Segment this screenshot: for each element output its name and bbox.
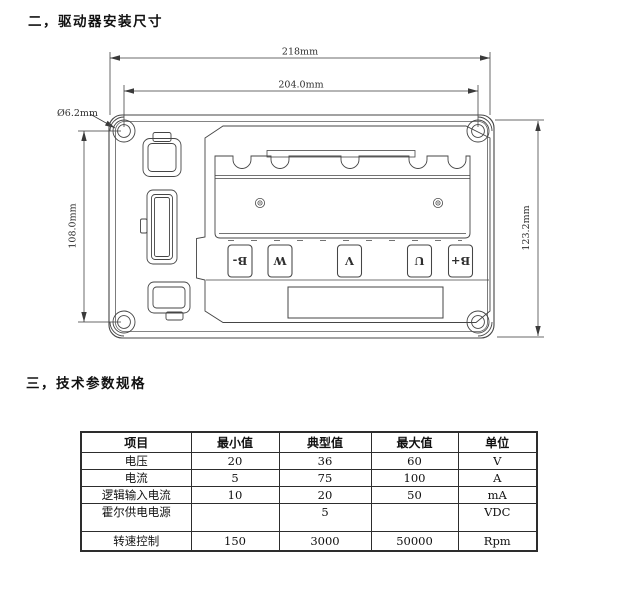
dimension-mount-height: 108.0mm [68, 131, 122, 322]
terminal-label-u: U [414, 254, 424, 268]
screw-left [255, 198, 264, 207]
cell-max: 60 [371, 453, 458, 470]
table-row-logic-input-current: 逻辑输入电流 10 20 50 mA [81, 487, 537, 504]
terminal-v [338, 245, 362, 277]
body-outline [109, 115, 494, 338]
nameplate [288, 287, 443, 318]
connector-bottom [148, 282, 190, 320]
body-inner-wall [116, 122, 488, 332]
cell-unit: V [458, 453, 537, 470]
center-panel [197, 126, 491, 323]
dim-label-mount-width: 204.0mm [278, 80, 323, 91]
dimension-overall-width: 218mm [110, 47, 490, 116]
col-header-min: 最小值 [191, 432, 279, 453]
cell-min: 20 [191, 453, 279, 470]
cell-item: 霍尔供电电源 [81, 504, 191, 532]
dim-label-overall-height: 123.2mm [521, 205, 532, 250]
cell-min: 10 [191, 487, 279, 504]
cell-max [371, 504, 458, 532]
terminal-label-b-minus: B- [232, 254, 247, 268]
dim-label-hole-diameter: Ø6.2mm [57, 108, 98, 119]
mounting-hole-bottom-right [467, 311, 492, 336]
table-row-voltage: 电压 20 36 60 V [81, 453, 537, 470]
mounting-hole-top-left [110, 117, 135, 142]
dim-label-overall-width: 218mm [282, 47, 318, 58]
cell-typ: 36 [279, 453, 371, 470]
cell-item: 电压 [81, 453, 191, 470]
connector-middle [141, 190, 178, 264]
col-header-unit: 单位 [458, 432, 537, 453]
terminal-b-minus [228, 245, 252, 277]
cell-typ: 3000 [279, 532, 371, 551]
cell-typ: 75 [279, 470, 371, 487]
cell-unit: VDC [458, 504, 537, 532]
terminal-label-b-plus: B+ [451, 254, 470, 268]
mounting-hole-top-right [467, 117, 492, 142]
dimension-mount-width: 204.0mm [124, 80, 478, 128]
terminal-label-w: W [272, 254, 287, 268]
terminal-b-plus [449, 245, 473, 277]
specs-table: 项目 最小值 典型值 最大值 单位 电压 20 36 60 V 电流 5 75 … [80, 431, 538, 552]
controller-body: B- W V U B+ [109, 115, 494, 338]
terminal-label-v: V [344, 254, 355, 268]
heatsink-block [215, 151, 470, 241]
cell-min: 5 [191, 470, 279, 487]
col-header-max: 最大值 [371, 432, 458, 453]
dimension-overall-height: 123.2mm [495, 120, 544, 337]
terminal-u [408, 245, 432, 277]
dim-label-mount-height: 108.0mm [68, 203, 79, 248]
cell-typ: 5 [279, 504, 371, 532]
cell-typ: 20 [279, 487, 371, 504]
datasheet-page: 二，驱动器安装尺寸 218mm 204.0mm Ø6.2mm 108.0mm [0, 0, 622, 589]
screw-right [433, 198, 442, 207]
dimension-hole-diameter: Ø6.2mm [57, 108, 115, 128]
cell-unit: Rpm [458, 532, 537, 551]
table-row-current: 电流 5 75 100 A [81, 470, 537, 487]
col-header-typical: 典型值 [279, 432, 371, 453]
cell-item: 逻辑输入电流 [81, 487, 191, 504]
mounting-hole-bottom-left [110, 311, 135, 336]
cell-max: 100 [371, 470, 458, 487]
col-header-item: 项目 [81, 432, 191, 453]
specs-header-row: 项目 最小值 典型值 最大值 单位 [81, 432, 537, 453]
terminal-w [268, 245, 292, 277]
table-row-speed-control: 转速控制 150 3000 50000 Rpm [81, 532, 537, 551]
cell-max: 50 [371, 487, 458, 504]
cell-min: 150 [191, 532, 279, 551]
section-title-specs: 三，技术参数规格 [26, 372, 146, 392]
table-row-hall-supply: 霍尔供电电源 5 VDC [81, 504, 537, 532]
cell-max: 50000 [371, 532, 458, 551]
cell-unit: mA [458, 487, 537, 504]
cell-min [191, 504, 279, 532]
terminal-block [228, 245, 473, 277]
terminal-labels: B- W V U B+ [232, 254, 470, 268]
section-title-installation: 二，驱动器安装尺寸 [28, 10, 163, 30]
bus-bar [267, 151, 415, 158]
cell-unit: A [458, 470, 537, 487]
cell-item: 转速控制 [81, 532, 191, 551]
connector-top [143, 133, 181, 177]
cell-item: 电流 [81, 470, 191, 487]
